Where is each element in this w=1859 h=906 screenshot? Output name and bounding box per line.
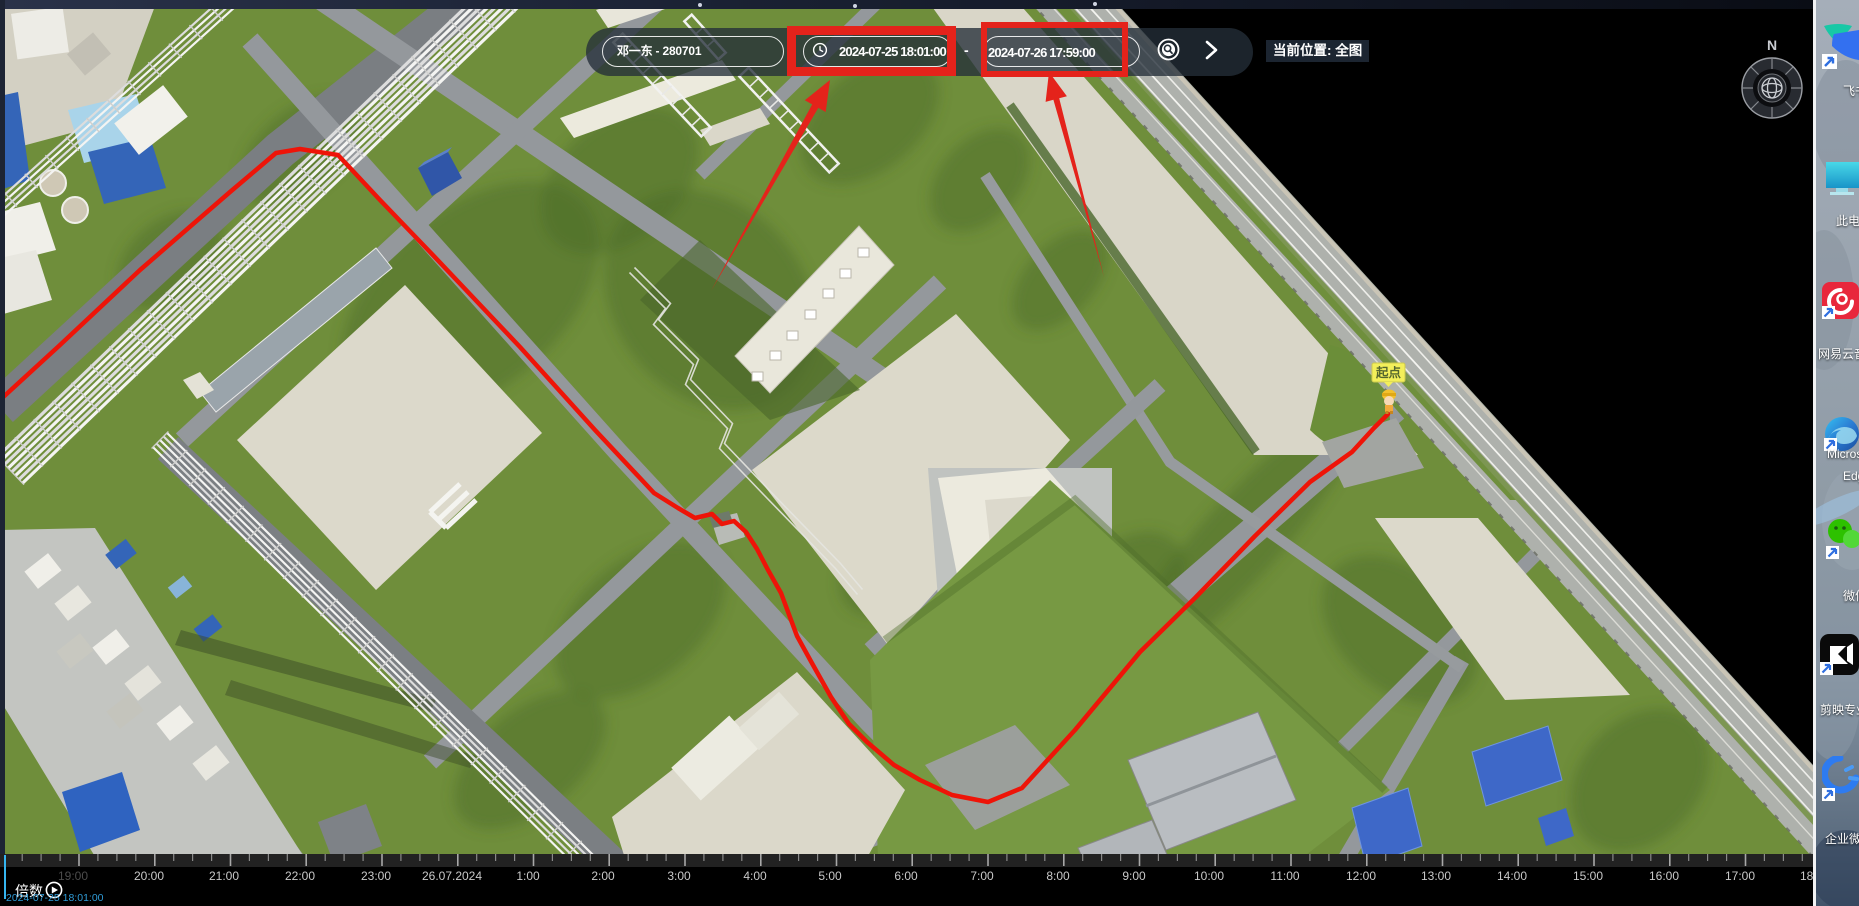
svg-text:N: N — [1767, 37, 1777, 53]
svg-text:起点: 起点 — [1375, 365, 1402, 380]
